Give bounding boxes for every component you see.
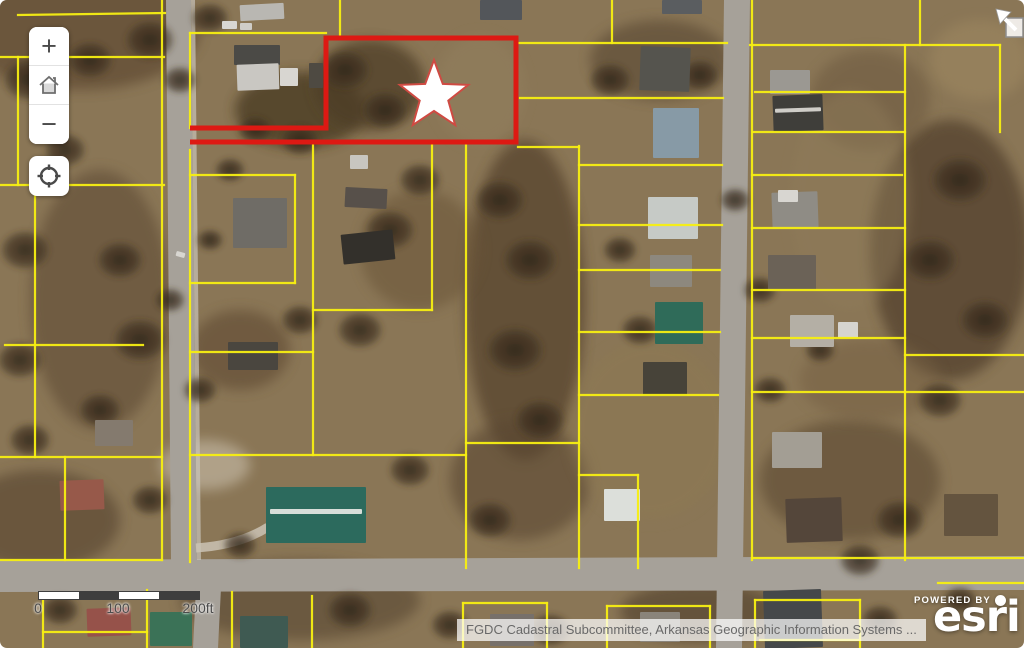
locate-crosshair-icon [36,163,62,189]
home-icon [37,73,61,97]
zoom-in-button[interactable]: + [29,27,69,66]
esri-wordmark: esri [933,592,1020,642]
attribution: FGDC Cadastral Subcommittee, Arkansas Ge… [457,619,926,641]
zoom-out-button[interactable]: − [29,105,69,144]
minus-icon: − [41,111,57,138]
map-viewport: + − 0 [0,0,1024,648]
plus-icon: + [41,33,57,60]
locate-button[interactable] [29,156,69,196]
map-zoom-controls: + − [29,27,69,144]
home-button[interactable] [29,66,69,105]
aerial-map-canvas[interactable] [0,0,1024,648]
collapse-arrow-icon[interactable] [994,4,1024,42]
